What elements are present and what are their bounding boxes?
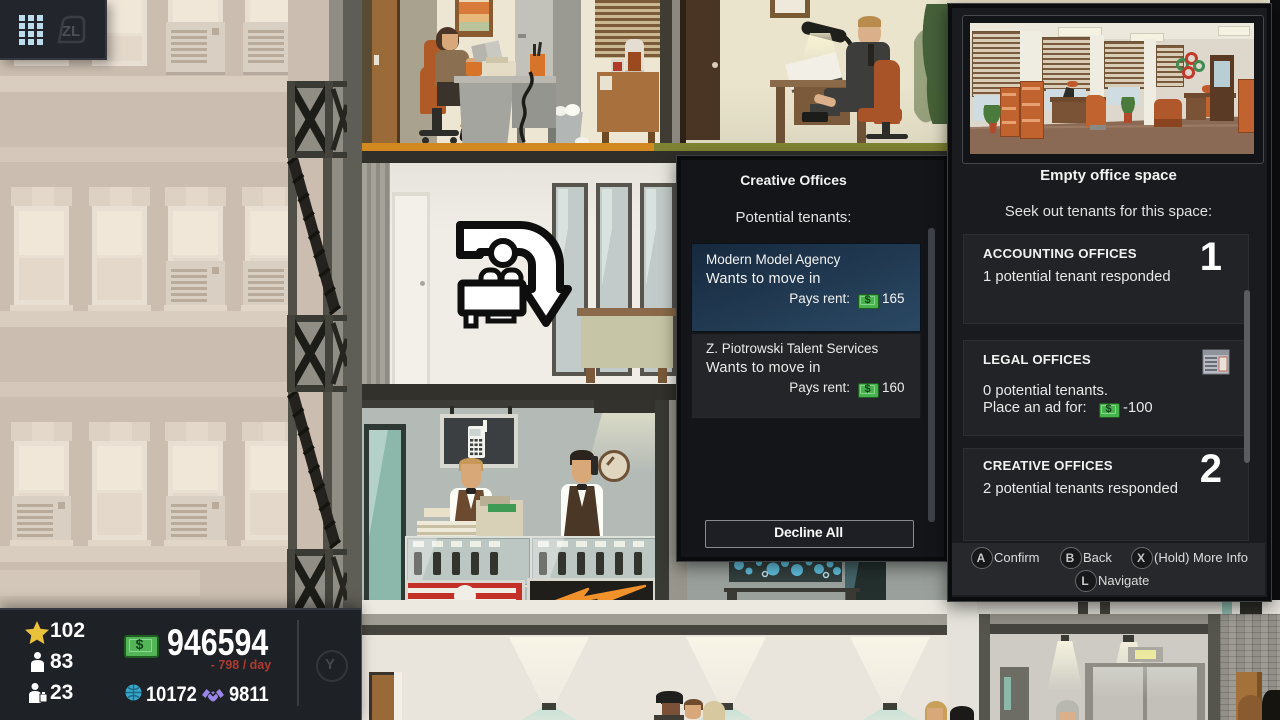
svg-text:ZL: ZL [62,23,80,40]
